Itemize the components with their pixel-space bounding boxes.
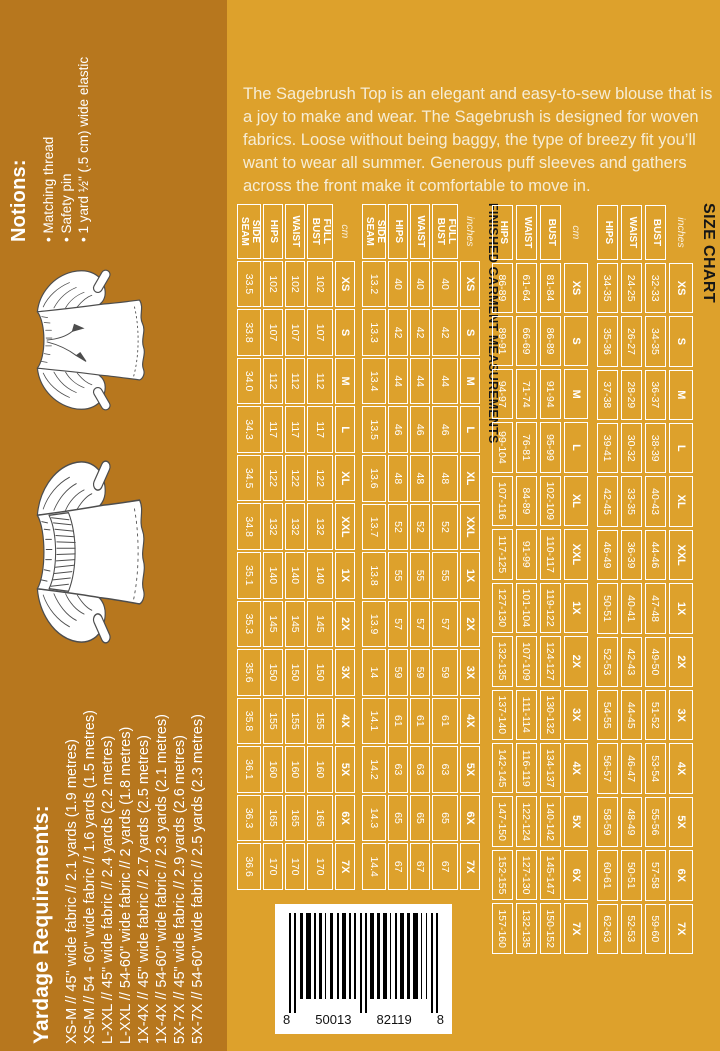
value-cell: 52-53 <box>621 904 642 954</box>
value-cell: 32-33 <box>645 263 666 313</box>
yardage-section: Yardage Requirements: XS-M // 45" wide f… <box>30 604 225 1044</box>
value-cell: 76-81 <box>516 422 537 472</box>
value-cell: 91-94 <box>540 369 561 419</box>
value-cell: 58-59 <box>597 797 618 847</box>
value-cell: 157-160 <box>492 903 513 954</box>
value-cell: 65 <box>432 795 458 842</box>
size-header: 6X <box>335 795 355 842</box>
barcode-bar <box>421 913 423 999</box>
value-cell: 36-39 <box>621 530 642 581</box>
value-cell: 170 <box>285 843 305 890</box>
value-cell: 35.1 <box>237 552 261 599</box>
value-cell: 81-84 <box>540 263 561 313</box>
size-header: XL <box>335 455 355 502</box>
value-cell: 36.3 <box>237 795 261 842</box>
notions-section: Notions: Matching threadSafety pin1 yard… <box>8 12 108 242</box>
size-header: 2X <box>460 601 480 648</box>
value-cell: 91-99 <box>516 529 537 580</box>
value-cell: 127-130 <box>492 583 513 633</box>
blouse-front-illustration <box>14 252 160 428</box>
value-cell: 50-51 <box>597 583 618 633</box>
value-cell: 112 <box>285 358 305 405</box>
value-cell: 28-29 <box>621 370 642 420</box>
value-cell: 44 <box>410 358 430 405</box>
value-cell: 61 <box>388 698 408 745</box>
barcode-bar <box>319 913 322 999</box>
measurement-table-cm: cmXSSMLXLXXL1X2X3X4X5X6X7XBUST81-8486-89… <box>489 202 591 957</box>
value-cell: 13.2 <box>362 261 386 308</box>
value-cell: 54-55 <box>597 690 618 740</box>
value-cell: 57 <box>410 601 430 648</box>
value-cell: 46-49 <box>597 530 618 581</box>
page-background: { "colors": { "background": "#DDA12C", "… <box>0 0 720 1051</box>
value-cell: 165 <box>263 795 283 842</box>
value-cell: 67 <box>432 843 458 890</box>
value-cell: 40 <box>410 261 430 308</box>
value-cell: 145 <box>263 601 283 648</box>
value-cell: 36-37 <box>645 370 666 420</box>
size-header: 5X <box>669 797 693 847</box>
value-cell: 160 <box>285 746 305 793</box>
value-cell: 38-39 <box>645 423 666 473</box>
notion-item: Matching thread <box>40 12 58 242</box>
value-cell: 122 <box>263 455 283 502</box>
barcode-bar <box>325 913 327 999</box>
value-cell: 40 <box>388 261 408 308</box>
measurement-table-inches: inchesXSSMLXLXXL1X2X3X4X5X6X7XFULL BUST4… <box>360 202 482 892</box>
yardage-line: 1X-4X // 45" wide fabric // 2.7 yards (2… <box>135 604 153 1044</box>
value-cell: 134-137 <box>540 743 561 793</box>
row-label: BUST <box>645 205 666 260</box>
size-header: S <box>669 316 693 366</box>
value-cell: 145 <box>285 601 305 648</box>
value-cell: 86-89 <box>540 316 561 366</box>
barcode-bars <box>289 913 438 1017</box>
value-cell: 124-127 <box>540 636 561 686</box>
value-cell: 155 <box>307 698 333 745</box>
value-cell: 102-109 <box>540 476 561 526</box>
value-cell: 137-140 <box>492 690 513 740</box>
size-header: 7X <box>564 903 588 954</box>
finished-garment-tables: inchesXSSMLXLXXL1X2X3X4X5X6X7XFULL BUST4… <box>235 202 482 892</box>
value-cell: 48 <box>410 455 430 502</box>
value-cell: 46 <box>410 406 430 453</box>
value-cell: 14 <box>362 649 386 695</box>
value-cell: 94-97 <box>492 369 513 419</box>
size-header: 5X <box>460 746 480 793</box>
size-header: L <box>564 422 588 472</box>
value-cell: 160 <box>307 746 333 793</box>
value-cell: 61 <box>432 698 458 745</box>
barcode-bar <box>390 913 392 999</box>
value-cell: 33.8 <box>237 309 261 356</box>
value-cell: 44 <box>432 358 458 405</box>
value-cell: 52 <box>410 504 430 551</box>
value-cell: 127-130 <box>516 850 537 900</box>
value-cell: 14.4 <box>362 843 386 890</box>
value-cell: 145 <box>307 601 333 648</box>
value-cell: 44 <box>388 358 408 405</box>
barcode-bar <box>300 913 304 999</box>
value-cell: 86-89 <box>492 263 513 313</box>
yardage-title: Yardage Requirements: <box>30 604 54 1044</box>
value-cell: 35.3 <box>237 601 261 648</box>
value-cell: 122 <box>307 455 333 502</box>
barcode-digit-group: 82119 <box>377 1012 412 1027</box>
value-cell: 60-61 <box>597 850 618 900</box>
value-cell: 24-25 <box>621 263 642 313</box>
size-header: XL <box>460 455 480 502</box>
value-cell: 102 <box>307 261 333 308</box>
yardage-line: L-XXL // 54-60" wide fabric // 2 yards (… <box>117 604 135 1044</box>
value-cell: 102 <box>263 261 283 308</box>
value-cell: 61-64 <box>516 263 537 313</box>
value-cell: 42-43 <box>621 637 642 687</box>
value-cell: 35.8 <box>237 698 261 745</box>
value-cell: 13.7 <box>362 504 386 551</box>
size-header: M <box>460 358 480 405</box>
value-cell: 62-63 <box>597 904 618 954</box>
value-cell: 35-36 <box>597 316 618 366</box>
value-cell: 55-56 <box>645 797 666 847</box>
size-header: 3X <box>460 649 480 695</box>
barcode-bar <box>400 913 404 999</box>
value-cell: 155 <box>263 698 283 745</box>
value-cell: 34.5 <box>237 455 261 502</box>
value-cell: 132-135 <box>516 903 537 954</box>
barcode-bar <box>294 913 296 1013</box>
size-header: 7X <box>460 843 480 890</box>
yardage-lines: XS-M // 45" wide fabric // 2.1 yards (1.… <box>63 604 207 1044</box>
value-cell: 44-46 <box>645 530 666 581</box>
value-cell: 147-150 <box>492 796 513 846</box>
size-header: 1X <box>564 583 588 633</box>
value-cell: 117-125 <box>492 529 513 580</box>
value-cell: 107 <box>263 309 283 356</box>
unit-label: cm <box>335 204 355 259</box>
yardage-line: 5X-7X // 45" wide fabric // 2.9 yards (2… <box>171 604 189 1044</box>
value-cell: 165 <box>307 795 333 842</box>
value-cell: 132-135 <box>492 636 513 686</box>
value-cell: 34.0 <box>237 358 261 405</box>
size-header: XXL <box>460 504 480 551</box>
value-cell: 140 <box>285 552 305 599</box>
value-cell: 59 <box>388 649 408 695</box>
unit-label: cm <box>564 205 588 260</box>
barcode-bar <box>383 913 387 999</box>
size-header: 2X <box>335 601 355 648</box>
size-header: XS <box>564 263 588 313</box>
size-header: 5X <box>564 796 588 846</box>
value-cell: 14.2 <box>362 746 386 793</box>
measurement-table-inches: inchesXSSMLXLXXL1X2X3X4X5X6X7XBUST32-333… <box>594 202 696 957</box>
value-cell: 55 <box>432 552 458 599</box>
size-header: XXL <box>669 530 693 581</box>
value-cell: 40 <box>432 261 458 308</box>
barcode-digit-group: 8 <box>283 1012 290 1027</box>
finished-garment-section: FINISHED GARMENT MEASUREMENTS inchesXSSM… <box>245 202 500 892</box>
blouse-front-drawing <box>14 252 160 428</box>
size-header: L <box>460 406 480 453</box>
barcode-bar <box>395 913 398 999</box>
size-header: XS <box>460 261 480 308</box>
value-cell: 67 <box>410 843 430 890</box>
unit-label: inches <box>669 205 693 260</box>
yardage-line: L-XXL // 45" wide fabric // 2.4 yards (2… <box>99 604 117 1044</box>
row-label: FULL BUST <box>307 204 333 259</box>
barcode-bar <box>370 913 374 999</box>
value-cell: 40-43 <box>645 476 666 526</box>
value-cell: 107 <box>285 309 305 356</box>
size-header: 4X <box>564 743 588 793</box>
value-cell: 48 <box>432 455 458 502</box>
value-cell: 34.8 <box>237 503 261 550</box>
value-cell: 119-122 <box>540 583 561 633</box>
value-cell: 150-152 <box>540 903 561 954</box>
value-cell: 13.3 <box>362 309 386 356</box>
value-cell: 57 <box>388 601 408 648</box>
value-cell: 145-147 <box>540 850 561 900</box>
value-cell: 44-45 <box>621 690 642 740</box>
unit-label: inches <box>460 204 480 259</box>
row-label: HIPS <box>492 205 513 260</box>
size-header: 4X <box>460 698 480 745</box>
value-cell: 99-104 <box>492 422 513 472</box>
value-cell: 35.6 <box>237 649 261 696</box>
value-cell: 59 <box>410 649 430 695</box>
value-cell: 110-117 <box>540 529 561 580</box>
value-cell: 160 <box>263 746 283 793</box>
value-cell: 150 <box>307 649 333 696</box>
value-cell: 42-45 <box>597 476 618 526</box>
barcode-bar <box>337 913 340 999</box>
value-cell: 107-116 <box>492 476 513 526</box>
value-cell: 101-104 <box>516 583 537 633</box>
size-header: L <box>669 423 693 473</box>
size-header: 1X <box>460 552 480 599</box>
row-label: HIPS <box>597 205 618 260</box>
value-cell: 102 <box>285 261 305 308</box>
value-cell: 170 <box>263 843 283 890</box>
value-cell: 107 <box>307 309 333 356</box>
size-header: XXL <box>564 529 588 580</box>
value-cell: 36.6 <box>237 843 261 890</box>
value-cell: 132 <box>285 503 305 550</box>
size-header: 3X <box>669 690 693 740</box>
size-header: S <box>564 316 588 366</box>
barcode-bar <box>330 913 334 999</box>
row-label: HIPS <box>263 204 283 259</box>
barcode-bar <box>342 913 346 999</box>
value-cell: 46-47 <box>621 743 642 793</box>
value-cell: 67 <box>388 843 408 890</box>
value-cell: 49-50 <box>645 637 666 687</box>
value-cell: 165 <box>285 795 305 842</box>
size-header: 3X <box>564 690 588 740</box>
value-cell: 111-114 <box>516 690 537 740</box>
row-label: WAIST <box>285 204 305 259</box>
value-cell: 46 <box>432 406 458 453</box>
yardage-line: XS-M // 45" wide fabric // 2.1 yards (1.… <box>63 604 81 1044</box>
row-label: WAIST <box>410 204 430 259</box>
value-cell: 150 <box>285 649 305 696</box>
value-cell: 140 <box>307 552 333 599</box>
value-cell: 55 <box>410 552 430 599</box>
value-cell: 57-58 <box>645 850 666 900</box>
value-cell: 63 <box>410 746 430 793</box>
size-header: XL <box>669 476 693 526</box>
row-label: WAIST <box>516 205 537 260</box>
size-header: M <box>669 370 693 420</box>
yardage-line: XS-M // 54 - 60" wide fabric // 1.6 yard… <box>81 604 99 1044</box>
value-cell: 50-51 <box>621 850 642 900</box>
yardage-line: 1X-4X // 54-60" wide fabric // 2.3 yards… <box>153 604 171 1044</box>
value-cell: 117 <box>285 406 305 453</box>
value-cell: 132 <box>263 503 283 550</box>
value-cell: 84-89 <box>516 476 537 526</box>
value-cell: 13.5 <box>362 406 386 453</box>
row-label: FULL BUST <box>432 204 458 259</box>
value-cell: 33-35 <box>621 476 642 526</box>
value-cell: 65 <box>410 795 430 842</box>
value-cell: 59 <box>432 649 458 695</box>
value-cell: 112 <box>263 358 283 405</box>
value-cell: 117 <box>307 406 333 453</box>
value-cell: 152-155 <box>492 850 513 900</box>
size-header: 6X <box>564 850 588 900</box>
value-cell: 89-91 <box>492 316 513 366</box>
size-header: 6X <box>460 795 480 842</box>
description-paragraph: The Sagebrush Top is an elegant and easy… <box>243 83 715 198</box>
value-cell: 95-99 <box>540 422 561 472</box>
value-cell: 51-52 <box>645 690 666 740</box>
size-header: XS <box>669 263 693 313</box>
size-chart-tables: inchesXSSMLXLXXL1X2X3X4X5X6X7XBUST32-333… <box>489 202 696 957</box>
value-cell: 36.1 <box>237 746 261 793</box>
value-cell: 34-35 <box>597 263 618 313</box>
value-cell: 52 <box>432 504 458 551</box>
size-header: 6X <box>669 850 693 900</box>
size-header: XXL <box>335 503 355 550</box>
value-cell: 30-32 <box>621 423 642 473</box>
notions-title: Notions: <box>8 12 31 242</box>
value-cell: 155 <box>285 698 305 745</box>
size-header: S <box>335 309 355 356</box>
barcode-digit-group: 8 <box>437 1012 444 1027</box>
value-cell: 63 <box>388 746 408 793</box>
value-cell: 33.5 <box>237 261 261 308</box>
barcode-bar <box>436 913 438 1013</box>
value-cell: 34-35 <box>645 316 666 366</box>
barcode-bar <box>289 913 291 1013</box>
value-cell: 116-119 <box>516 743 537 793</box>
value-cell: 14.3 <box>362 795 386 842</box>
yardage-line: 5X-7X // 54-60" wide fabric // 2.5 yards… <box>189 604 207 1044</box>
value-cell: 42 <box>432 309 458 356</box>
value-cell: 53-54 <box>645 743 666 793</box>
value-cell: 26-27 <box>621 316 642 366</box>
value-cell: 13.9 <box>362 601 386 648</box>
value-cell: 59-60 <box>645 904 666 954</box>
value-cell: 61 <box>410 698 430 745</box>
value-cell: 55 <box>388 552 408 599</box>
barcode-bar <box>407 913 410 999</box>
value-cell: 142-145 <box>492 743 513 793</box>
row-label: HIPS <box>388 204 408 259</box>
value-cell: 40-41 <box>621 583 642 633</box>
value-cell: 66-69 <box>516 316 537 366</box>
value-cell: 34.3 <box>237 406 261 453</box>
value-cell: 42 <box>410 309 430 356</box>
row-label: BUST <box>540 205 561 260</box>
value-cell: 130-132 <box>540 690 561 740</box>
barcode: 850013821198 <box>275 904 452 1034</box>
value-cell: 71-74 <box>516 369 537 419</box>
size-chart-section: SIZE CHART inchesXSSMLXLXXL1X2X3X4X5X6X7… <box>500 202 717 957</box>
value-cell: 65 <box>388 795 408 842</box>
barcode-bar <box>349 913 351 999</box>
size-header: L <box>335 406 355 453</box>
row-label: SIDE SEAM <box>362 204 386 259</box>
value-cell: 46 <box>388 406 408 453</box>
barcode-bar <box>314 913 316 999</box>
size-header: 7X <box>335 843 355 890</box>
value-cell: 52 <box>388 504 408 551</box>
size-header: XL <box>564 476 588 526</box>
value-cell: 170 <box>307 843 333 890</box>
size-header: XS <box>335 261 355 308</box>
value-cell: 13.8 <box>362 552 386 599</box>
value-cell: 63 <box>432 746 458 793</box>
size-chart-title: SIZE CHART <box>699 203 717 957</box>
value-cell: 112 <box>307 358 333 405</box>
size-header: M <box>564 369 588 419</box>
size-header: 2X <box>669 637 693 687</box>
barcode-bar <box>354 913 357 999</box>
value-cell: 48 <box>388 455 408 502</box>
size-header: 7X <box>669 904 693 954</box>
size-header: 5X <box>335 746 355 793</box>
value-cell: 150 <box>263 649 283 696</box>
notions-list: Matching threadSafety pin1 yard ½" (.5 c… <box>40 12 93 242</box>
value-cell: 122 <box>285 455 305 502</box>
value-cell: 37-38 <box>597 370 618 420</box>
value-cell: 122-124 <box>516 796 537 846</box>
value-cell: 48-49 <box>621 797 642 847</box>
barcode-bar <box>413 913 418 999</box>
value-cell: 57 <box>432 601 458 648</box>
size-header: 3X <box>335 649 355 696</box>
barcode-bar <box>377 913 380 999</box>
size-header: 2X <box>564 636 588 686</box>
value-cell: 132 <box>307 503 333 550</box>
row-label: SIDE SEAM <box>237 204 261 259</box>
value-cell: 42 <box>388 309 408 356</box>
barcode-bar <box>431 913 433 1013</box>
barcode-bar <box>426 913 428 999</box>
value-cell: 39-41 <box>597 423 618 473</box>
size-header: 4X <box>669 743 693 793</box>
size-header: 1X <box>335 552 355 599</box>
value-cell: 107-109 <box>516 636 537 686</box>
barcode-digits: 850013821198 <box>275 1012 452 1027</box>
value-cell: 13.4 <box>362 358 386 405</box>
size-header: S <box>460 309 480 356</box>
value-cell: 52-53 <box>597 637 618 687</box>
value-cell: 56-57 <box>597 743 618 793</box>
measurement-table-cm: cmXSSMLXLXXL1X2X3X4X5X6X7XFULL BUST10210… <box>235 202 357 892</box>
barcode-bar <box>360 913 362 1013</box>
